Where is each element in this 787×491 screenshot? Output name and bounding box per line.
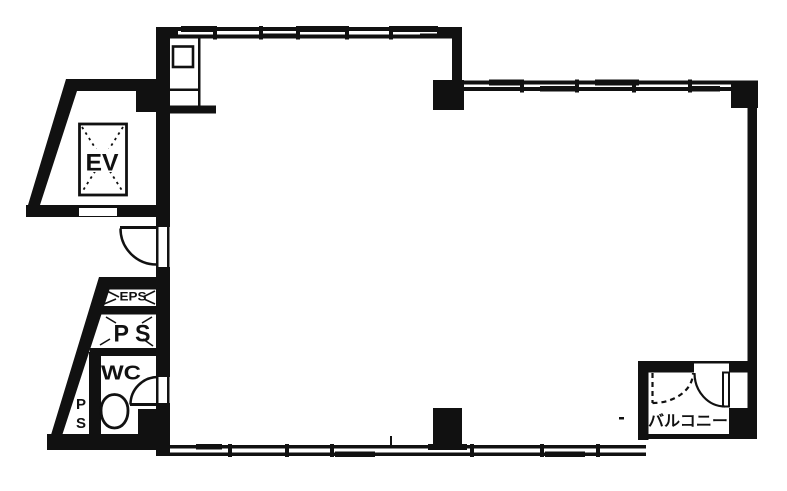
svg-text:EV: EV [86,150,119,177]
svg-text:EPS: EPS [120,290,147,304]
svg-text:WC: WC [101,363,141,385]
svg-text:P S: P S [114,321,151,348]
svg-text:S: S [76,415,86,432]
svg-text:バルコニー: バルコニー [648,412,728,430]
svg-text:P: P [76,396,86,413]
